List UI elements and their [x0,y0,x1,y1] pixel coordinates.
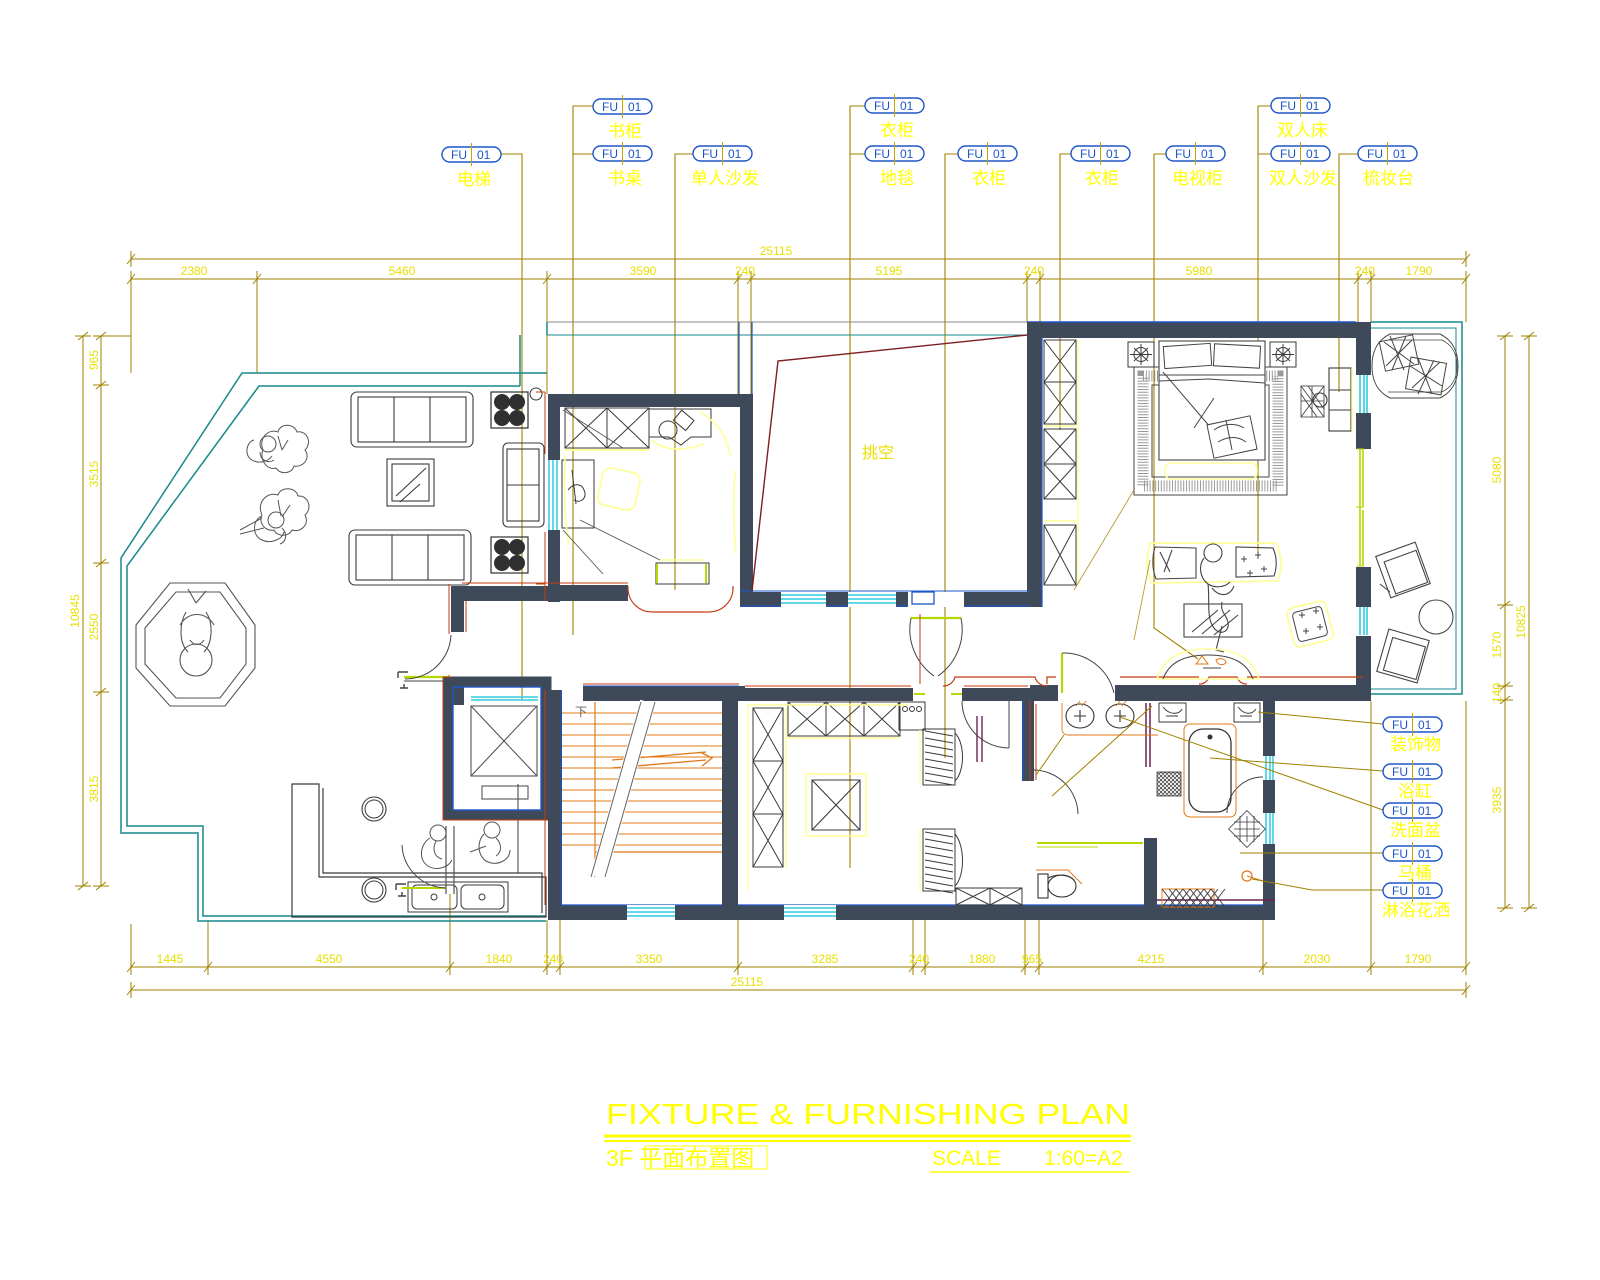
svg-text:3815: 3815 [87,775,101,802]
svg-text:装饰物: 装饰物 [1390,735,1441,754]
svg-text:地毯: 地毯 [880,169,914,188]
svg-text:1445: 1445 [157,952,184,966]
svg-text:下: 下 [575,705,587,719]
svg-text:1790: 1790 [1405,952,1432,966]
svg-text:马桶: 马桶 [1398,864,1432,883]
svg-text:1880: 1880 [969,952,996,966]
svg-text:挑空: 挑空 [862,444,894,462]
svg-text:240: 240 [543,952,563,966]
svg-text:2380: 2380 [181,264,208,278]
svg-text:4550: 4550 [316,952,343,966]
svg-text:240: 240 [1024,264,1044,278]
svg-text:浴缸: 浴缸 [1398,781,1432,801]
svg-text:单人沙发: 单人沙发 [691,169,759,188]
svg-text:3285: 3285 [812,952,839,966]
svg-text:1790: 1790 [1406,264,1433,278]
svg-text:3935: 3935 [1490,786,1504,813]
svg-text:2030: 2030 [1304,952,1331,966]
svg-text:衣柜: 衣柜 [1085,169,1119,188]
svg-text:25115: 25115 [731,975,764,989]
svg-text:电梯: 电梯 [457,170,491,189]
svg-text:240: 240 [1355,264,1375,278]
svg-text:淋浴花洒: 淋浴花洒 [1382,901,1450,920]
svg-text:240: 240 [909,952,929,966]
svg-text:FIXTURE & FURNISHING PLAN: FIXTURE & FURNISHING PLAN [606,1099,1130,1131]
svg-text:书柜: 书柜 [608,122,642,141]
svg-text:梳妆台: 梳妆台 [1363,169,1414,188]
svg-text:1:60=A2: 1:60=A2 [1044,1147,1123,1170]
svg-text:双人床: 双人床 [1277,121,1328,140]
svg-text:4215: 4215 [1138,952,1165,966]
svg-text:25115: 25115 [760,244,793,258]
svg-text:965: 965 [87,350,101,370]
svg-text:1570: 1570 [1490,631,1504,658]
svg-text:3515: 3515 [87,460,101,487]
svg-text:5080: 5080 [1490,456,1504,483]
svg-text:965: 965 [1022,952,1042,966]
svg-text:双人沙发: 双人沙发 [1269,169,1337,188]
svg-text:3350: 3350 [636,952,663,966]
svg-text:10825: 10825 [1514,605,1528,639]
svg-text:衣柜: 衣柜 [880,121,914,140]
svg-text:电视柜: 电视柜 [1172,169,1223,188]
svg-text:10845: 10845 [68,594,82,628]
svg-text:3F 平面布置图: 3F 平面布置图 [606,1145,754,1171]
svg-text:240: 240 [735,264,755,278]
svg-text:2550: 2550 [87,613,101,640]
svg-text:SCALE: SCALE [932,1147,1001,1170]
svg-text:5195: 5195 [876,264,903,278]
svg-text:1840: 1840 [486,952,513,966]
svg-text:洗面盆: 洗面盆 [1390,821,1441,840]
svg-text:5980: 5980 [1186,264,1213,278]
svg-text:5460: 5460 [389,264,416,278]
svg-text:3590: 3590 [630,264,657,278]
svg-text:140: 140 [1490,683,1504,703]
svg-text:书桌: 书桌 [608,169,642,188]
svg-text:衣柜: 衣柜 [972,169,1006,188]
